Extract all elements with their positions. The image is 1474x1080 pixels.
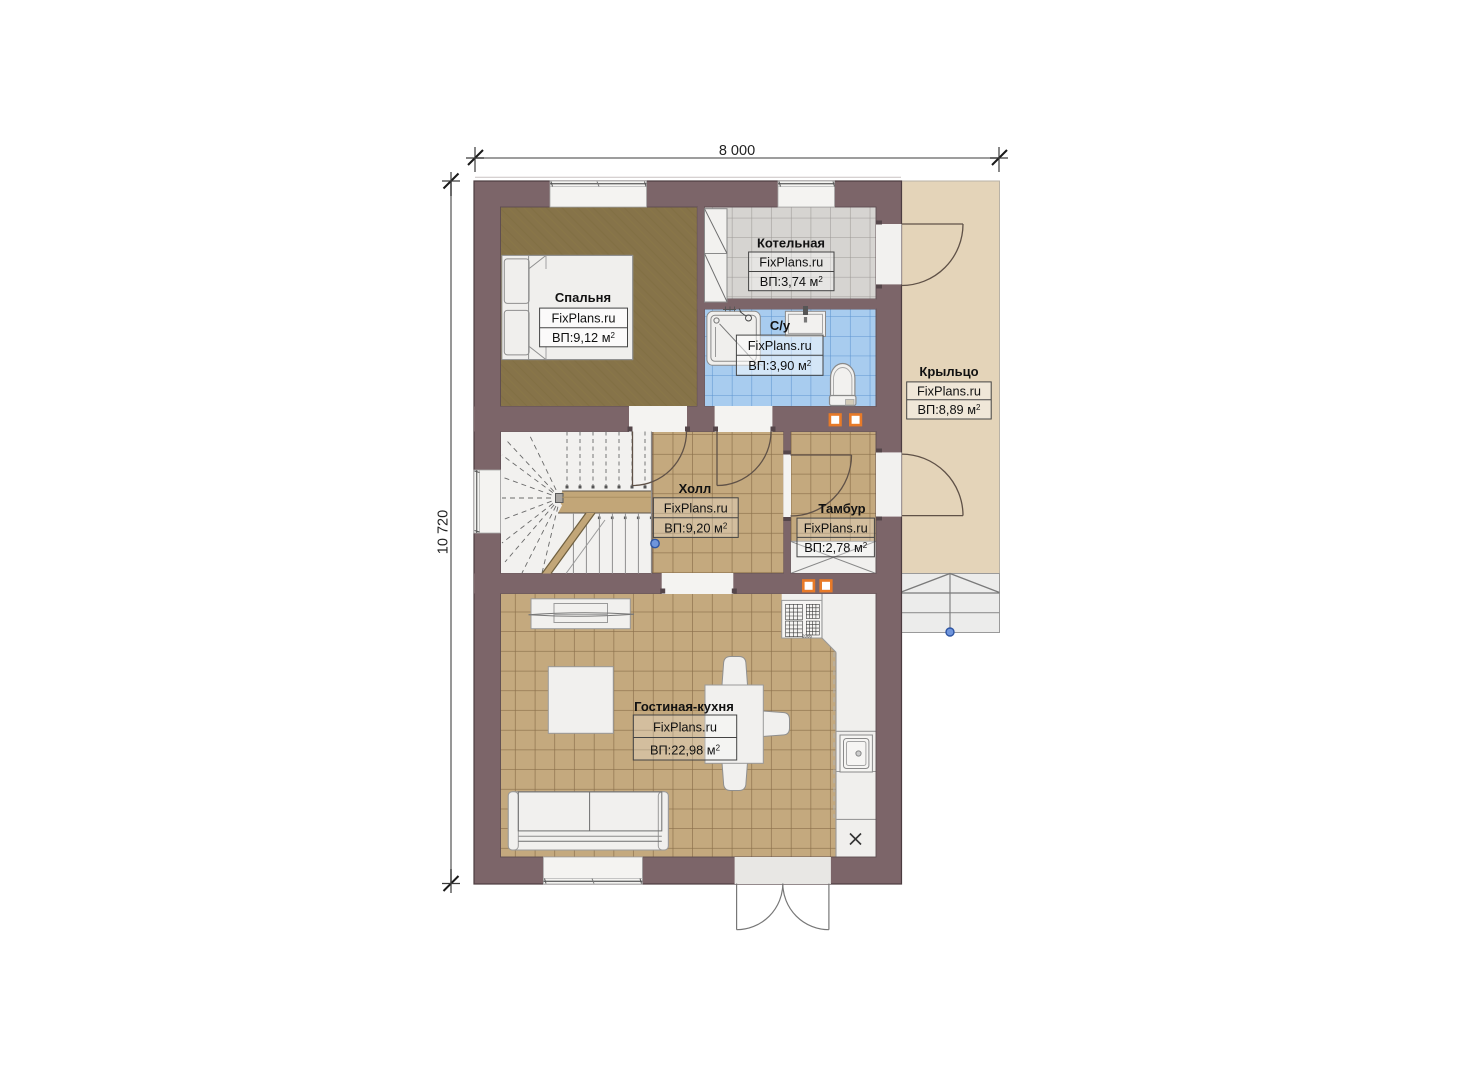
svg-text:Гостиная-кухня: Гостиная-кухня bbox=[634, 699, 734, 714]
svg-text:10 720: 10 720 bbox=[436, 510, 452, 554]
svg-text:8 000: 8 000 bbox=[719, 143, 755, 159]
svg-text:С/у: С/у bbox=[770, 318, 791, 333]
svg-text:ВП:3,90 м2: ВП:3,90 м2 bbox=[748, 358, 812, 373]
svg-text:ВП:9,12 м2: ВП:9,12 м2 bbox=[552, 330, 616, 345]
svg-text:Холл: Холл bbox=[679, 481, 712, 496]
svg-text:FixPlans.ru: FixPlans.ru bbox=[664, 501, 728, 516]
svg-text:ВП:8,89 м2: ВП:8,89 м2 bbox=[917, 402, 981, 417]
svg-text:FixPlans.ru: FixPlans.ru bbox=[748, 338, 812, 353]
svg-text:ВП:9,20 м2: ВП:9,20 м2 bbox=[664, 521, 728, 536]
svg-text:ВП:22,98 м2: ВП:22,98 м2 bbox=[650, 743, 721, 758]
svg-text:FixPlans.ru: FixPlans.ru bbox=[917, 384, 981, 399]
svg-text:Котельная: Котельная bbox=[757, 236, 825, 251]
svg-text:Тамбур: Тамбур bbox=[818, 501, 865, 516]
svg-text:Крыльцо: Крыльцо bbox=[919, 364, 978, 379]
svg-text:Спальня: Спальня bbox=[555, 290, 611, 305]
svg-text:ВП:2,78 м2: ВП:2,78 м2 bbox=[804, 540, 868, 555]
svg-text:ВП:3,74 м2: ВП:3,74 м2 bbox=[760, 274, 824, 289]
svg-text:FixPlans.ru: FixPlans.ru bbox=[759, 255, 823, 270]
svg-text:FixPlans.ru: FixPlans.ru bbox=[804, 521, 868, 536]
svg-text:2066: 2066 bbox=[802, 634, 813, 639]
svg-text:FixPlans.ru: FixPlans.ru bbox=[653, 720, 717, 735]
svg-text:FixPlans.ru: FixPlans.ru bbox=[551, 311, 615, 326]
